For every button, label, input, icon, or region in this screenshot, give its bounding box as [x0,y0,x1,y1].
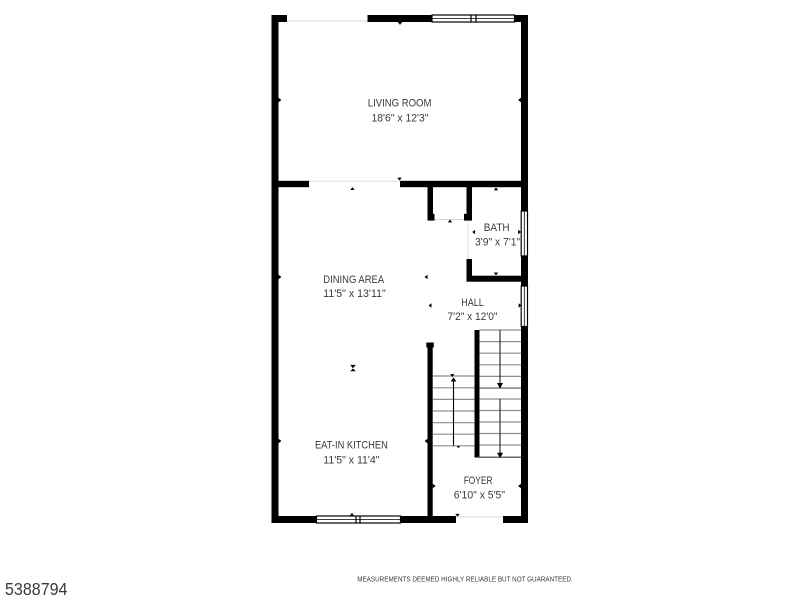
svg-text:3'9" x 7'1": 3'9" x 7'1" [475,237,520,249]
svg-text:11'5" x 11'4": 11'5" x 11'4" [323,454,379,466]
svg-text:7'2" x 12'0": 7'2" x 12'0" [448,311,498,323]
svg-text:LIVING ROOM: LIVING ROOM [368,98,432,110]
svg-text:DINING AREA: DINING AREA [323,274,384,286]
svg-text:HALL: HALL [461,297,484,309]
svg-text:18'6" x 12'3": 18'6" x 12'3" [372,113,429,125]
svg-text:5388794: 5388794 [5,579,68,599]
svg-text:MEASUREMENTS DEEMED HIGHLY REL: MEASUREMENTS DEEMED HIGHLY RELIABLE BUT … [357,576,573,583]
svg-text:EAT-IN KITCHEN: EAT-IN KITCHEN [315,440,388,452]
svg-text:FOYER: FOYER [464,475,493,487]
svg-text:BATH: BATH [484,222,510,234]
svg-text:6'10" x 5'5": 6'10" x 5'5" [454,489,505,501]
svg-text:11'5" x 13'11": 11'5" x 13'11" [323,288,386,300]
